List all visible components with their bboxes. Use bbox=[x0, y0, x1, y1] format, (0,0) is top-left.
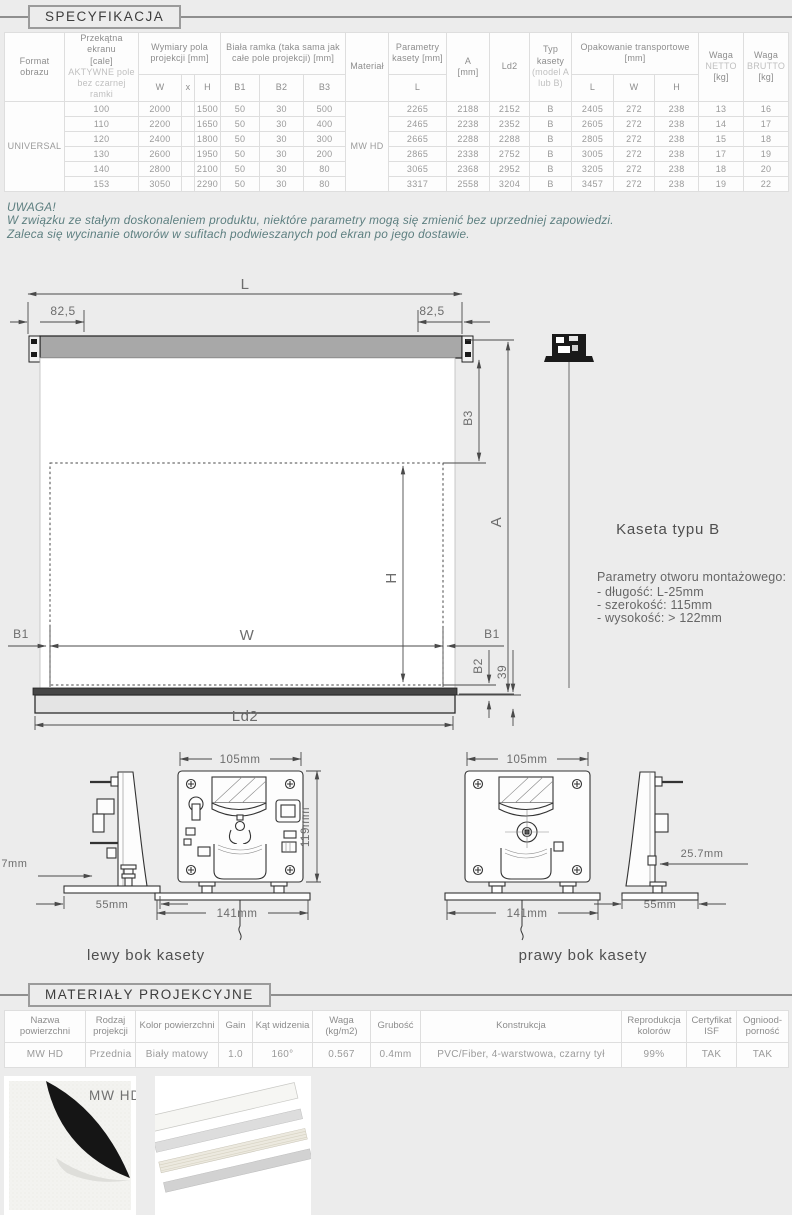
cell: 2288 bbox=[490, 131, 530, 146]
col-gross-line1: Waga bbox=[744, 50, 788, 61]
left-view-caption: lewy bok kasety bbox=[87, 947, 205, 964]
col-diagonal-line3: AKTYWNE pole bbox=[65, 67, 138, 78]
col-type-line1: Typ bbox=[530, 44, 571, 55]
cell: 50 bbox=[221, 101, 260, 116]
cell: 2200 bbox=[139, 116, 182, 131]
cell: B bbox=[530, 116, 572, 131]
right-dim-257-label: 25.7mm bbox=[681, 848, 724, 860]
cell: 22 bbox=[744, 176, 789, 191]
cell: 30 bbox=[260, 131, 304, 146]
material-value: MW HD bbox=[346, 101, 389, 191]
screen-front-drawing: L 82,5 82,5 bbox=[0, 266, 792, 736]
cell: TAK bbox=[737, 1042, 789, 1067]
col-projection-dims: Wymiary pola projekcji [mm] bbox=[139, 33, 221, 75]
cell: 3204 bbox=[490, 176, 530, 191]
cell: 3457 bbox=[572, 176, 614, 191]
cell: PVC/Fiber, 4-warstwowa, czarny tył bbox=[421, 1042, 622, 1067]
cell: 30 bbox=[260, 101, 304, 116]
mat-col-color-reproduction: Reprodukcja kolorów bbox=[622, 1010, 687, 1042]
col-gross-weight: Waga BRUTTO [kg] bbox=[744, 33, 789, 102]
four-layer-stack bbox=[155, 1082, 311, 1192]
cell: 2152 bbox=[490, 101, 530, 116]
col-net-weight: Waga NETTO [kg] bbox=[699, 33, 744, 102]
cell: 238 bbox=[655, 131, 699, 146]
material-layers-photo bbox=[155, 1076, 311, 1215]
cell: 120 bbox=[65, 131, 139, 146]
cell: 100 bbox=[65, 101, 139, 116]
subcol-pack-l: L bbox=[572, 74, 614, 101]
col-type-line4: lub B) bbox=[530, 78, 571, 89]
cell: 153 bbox=[65, 176, 139, 191]
cell: 30 bbox=[260, 176, 304, 191]
cell: 17 bbox=[744, 116, 789, 131]
cell: 272 bbox=[614, 131, 655, 146]
table-row: 110 2200 1650 50 30 400 2465 2238 2352 B… bbox=[5, 116, 789, 131]
cell: 20 bbox=[744, 161, 789, 176]
cell: 0.4mm bbox=[371, 1042, 421, 1067]
dim-825-right-label: 82,5 bbox=[419, 304, 444, 318]
cell bbox=[182, 131, 195, 146]
cassette-side-profile bbox=[544, 334, 594, 688]
cell: 0.567 bbox=[313, 1042, 371, 1067]
cell: 2100 bbox=[195, 161, 221, 176]
cell: 500 bbox=[304, 101, 346, 116]
notice-line2: Zaleca się wycinanie otworów w sufitach … bbox=[7, 228, 792, 242]
cell: 2288 bbox=[447, 131, 490, 146]
dim-825-left-label: 82,5 bbox=[50, 304, 75, 318]
materials-section-title: MATERIAŁY PROJEKCYJNE bbox=[28, 983, 271, 1007]
cell: 200 bbox=[304, 146, 346, 161]
col-net-line3: [kg] bbox=[699, 72, 743, 83]
subcol-cassette-l: L bbox=[389, 74, 447, 101]
col-a: A [mm] bbox=[447, 33, 490, 102]
right-view-caption: prawy bok kasety bbox=[519, 947, 648, 964]
cell: 1650 bbox=[195, 116, 221, 131]
cell: B bbox=[530, 176, 572, 191]
cell: 400 bbox=[304, 116, 346, 131]
cell: 17 bbox=[699, 146, 744, 161]
cell: B bbox=[530, 146, 572, 161]
cell bbox=[182, 146, 195, 161]
cell: 2665 bbox=[389, 131, 447, 146]
table-row: 130 2600 1950 50 30 200 2865 2338 2752 B… bbox=[5, 146, 789, 161]
mounting-item-height: - wysokość: > 122mm bbox=[597, 611, 722, 625]
col-diagonal-line2: [cale] bbox=[65, 56, 138, 67]
col-type-line3: (model A bbox=[530, 67, 571, 78]
cell: 30 bbox=[260, 146, 304, 161]
cell: 2338 bbox=[447, 146, 490, 161]
col-format: Format obrazu bbox=[5, 33, 65, 102]
table-row: UNIVERSAL 100 2000 1500 50 30 500 MW HD … bbox=[5, 101, 789, 116]
cell: 238 bbox=[655, 161, 699, 176]
table-row: MW HD Przednia Biały matowy 1.0 160° 0.5… bbox=[5, 1042, 789, 1067]
cell: 272 bbox=[614, 161, 655, 176]
cassette-side-views-drawing: 25.7mm 55mm 105mm 119mm 141mm lewy bok k… bbox=[0, 736, 792, 976]
left-dim-119-label: 119mm bbox=[300, 807, 312, 847]
mat-col-surface-color: Kolor powierzchni bbox=[136, 1010, 219, 1042]
subcol-b3: B3 bbox=[304, 74, 346, 101]
cell: 1.0 bbox=[219, 1042, 253, 1067]
cell: 30 bbox=[260, 116, 304, 131]
cell: 2752 bbox=[490, 146, 530, 161]
table-row: 140 2800 2100 50 30 80 3065 2368 2952 B … bbox=[5, 161, 789, 176]
mat-col-isf-certificate: Certyfikat ISF bbox=[687, 1010, 737, 1042]
cell: 238 bbox=[655, 176, 699, 191]
cell: 13 bbox=[699, 101, 744, 116]
dim-825-left-group: 82,5 bbox=[10, 304, 84, 332]
cell: 110 bbox=[65, 116, 139, 131]
subcol-w: W bbox=[139, 74, 182, 101]
cell: 50 bbox=[221, 146, 260, 161]
spec-section-title: SPECYFIKACJA bbox=[28, 5, 181, 29]
dim-l-group: L bbox=[28, 276, 462, 334]
cell: 2238 bbox=[447, 116, 490, 131]
cell bbox=[182, 116, 195, 131]
cell: 3005 bbox=[572, 146, 614, 161]
cell: 18 bbox=[744, 131, 789, 146]
spec-sheet-page: SPECYFIKACJA Format obrazu Przekątna ekr… bbox=[0, 4, 792, 1204]
cell: 2558 bbox=[447, 176, 490, 191]
col-gross-line2: BRUTTO bbox=[744, 61, 788, 72]
header-rule-left bbox=[0, 16, 28, 18]
col-ld2: Ld2 bbox=[490, 33, 530, 102]
cell: 2352 bbox=[490, 116, 530, 131]
dim-ld2-label: Ld2 bbox=[232, 708, 259, 725]
col-type: Typ kasety (model A lub B) bbox=[530, 33, 572, 102]
cell: 2600 bbox=[139, 146, 182, 161]
left-profile-view bbox=[64, 772, 160, 893]
cell: 99% bbox=[622, 1042, 687, 1067]
spec-table: Format obrazu Przekątna ekranu [cale] AK… bbox=[4, 32, 789, 192]
mat-col-fire-resistance: Ogniood- porność bbox=[737, 1010, 789, 1042]
cell: MW HD bbox=[5, 1042, 86, 1067]
cell: 2400 bbox=[139, 131, 182, 146]
col-material: Materiał bbox=[346, 33, 389, 102]
col-type-line2: kasety bbox=[530, 56, 571, 67]
cell: 2000 bbox=[139, 101, 182, 116]
col-a-line2: [mm] bbox=[447, 67, 489, 78]
col-diagonal: Przekątna ekranu [cale] AKTYWNE pole bez… bbox=[65, 33, 139, 102]
dim-b1-right-label: B1 bbox=[484, 627, 500, 641]
mat-col-thickness: Grubość bbox=[371, 1010, 421, 1042]
mat-col-construction: Konstrukcja bbox=[421, 1010, 622, 1042]
cell: 300 bbox=[304, 131, 346, 146]
mounting-item-width: - szerokość: 115mm bbox=[597, 598, 712, 612]
dim-h-label: H bbox=[383, 572, 400, 583]
subcol-h: H bbox=[195, 74, 221, 101]
dim-b1-right-group: B1 bbox=[447, 627, 504, 646]
cell: B bbox=[530, 101, 572, 116]
cell bbox=[182, 176, 195, 191]
right-dim-105-label: 105mm bbox=[507, 754, 548, 766]
cell: 1800 bbox=[195, 131, 221, 146]
cell: 3065 bbox=[389, 161, 447, 176]
cell: 2188 bbox=[447, 101, 490, 116]
dim-b3-label: B3 bbox=[461, 410, 475, 426]
subcol-pack-h: H bbox=[655, 74, 699, 101]
mat-col-viewing-angle: Kąt widzenia bbox=[253, 1010, 313, 1042]
cell: 1500 bbox=[195, 101, 221, 116]
cell: 140 bbox=[65, 161, 139, 176]
subcol-pack-w: W bbox=[614, 74, 655, 101]
mwhd-sample-image: MW HD bbox=[4, 1076, 136, 1215]
mounting-params: Parametry otworu montażowego: - długość:… bbox=[597, 570, 786, 625]
col-a-line1: A bbox=[447, 56, 489, 67]
cell: 30 bbox=[260, 161, 304, 176]
mat-col-gain: Gain bbox=[219, 1010, 253, 1042]
cell: 272 bbox=[614, 101, 655, 116]
mat-col-weight: Waga (kg/m2) bbox=[313, 1010, 371, 1042]
cell: 272 bbox=[614, 116, 655, 131]
notice-title: UWAGA! bbox=[7, 201, 792, 215]
cell: B bbox=[530, 161, 572, 176]
cell: 2265 bbox=[389, 101, 447, 116]
col-cassette-params: Parametry kasety [mm] bbox=[389, 33, 447, 75]
cell: 1950 bbox=[195, 146, 221, 161]
cell: 19 bbox=[699, 176, 744, 191]
cell: 2605 bbox=[572, 116, 614, 131]
mat-col-projection-type: Rodzaj projekcji bbox=[86, 1010, 136, 1042]
cell: 272 bbox=[614, 146, 655, 161]
cell: 19 bbox=[744, 146, 789, 161]
col-diagonal-line1: Przekątna ekranu bbox=[65, 33, 138, 56]
cell: B bbox=[530, 131, 572, 146]
col-net-line1: Waga bbox=[699, 50, 743, 61]
dim-l-label: L bbox=[241, 276, 250, 293]
cell: 272 bbox=[614, 176, 655, 191]
cell: 80 bbox=[304, 161, 346, 176]
header-rule-right bbox=[271, 994, 792, 996]
cell: TAK bbox=[687, 1042, 737, 1067]
dim-39-label: 39 bbox=[495, 665, 509, 679]
left-dim-257-label: 25.7mm bbox=[0, 858, 27, 870]
header-rule-right bbox=[181, 16, 792, 18]
left-dim-141-label: 141mm bbox=[217, 908, 258, 920]
materials-section-header: MATERIAŁY PROJEKCYJNE bbox=[0, 982, 792, 1008]
left-dim-55-label: 55mm bbox=[96, 899, 129, 911]
cell: 2952 bbox=[490, 161, 530, 176]
materials-table: Nazwa powierzchni Rodzaj projekcji Kolor… bbox=[4, 1010, 789, 1068]
cell: 238 bbox=[655, 116, 699, 131]
dim-w-label: W bbox=[240, 627, 255, 644]
cell: 50 bbox=[221, 131, 260, 146]
cell: 2465 bbox=[389, 116, 447, 131]
cell: 16 bbox=[744, 101, 789, 116]
cell: 14 bbox=[699, 116, 744, 131]
cell: 3050 bbox=[139, 176, 182, 191]
left-dim-105-label: 105mm bbox=[220, 754, 261, 766]
dim-b1-left-label: B1 bbox=[13, 627, 29, 641]
notice-block: UWAGA! W związku ze stałym doskonaleniem… bbox=[7, 201, 792, 242]
col-diagonal-line4: bez czarnej ramki bbox=[65, 78, 138, 101]
cell bbox=[182, 101, 195, 116]
cell: 160° bbox=[253, 1042, 313, 1067]
subcol-b1: B1 bbox=[221, 74, 260, 101]
col-packaging: Opakowanie transportowe [mm] bbox=[572, 33, 699, 75]
cell: 2865 bbox=[389, 146, 447, 161]
spec-section-header: SPECYFIKACJA bbox=[0, 4, 792, 30]
cell: 2368 bbox=[447, 161, 490, 176]
material-samples: MW HD bbox=[4, 1076, 792, 1215]
cell: 238 bbox=[655, 101, 699, 116]
notice-line1: W związku ze stałym doskonaleniem produk… bbox=[7, 214, 792, 228]
subcol-x: x bbox=[182, 74, 195, 101]
header-rule-left bbox=[0, 994, 28, 996]
cell: 80 bbox=[304, 176, 346, 191]
cell: 130 bbox=[65, 146, 139, 161]
right-dim-55-label: 55mm bbox=[644, 899, 677, 911]
subcol-b2: B2 bbox=[260, 74, 304, 101]
cell: 2800 bbox=[139, 161, 182, 176]
cell: 238 bbox=[655, 146, 699, 161]
layer-stack-image bbox=[155, 1076, 311, 1215]
format-value: UNIVERSAL bbox=[5, 101, 65, 191]
cell: 2805 bbox=[572, 131, 614, 146]
cell: 50 bbox=[221, 161, 260, 176]
table-row: 153 3050 2290 50 30 80 3317 2558 3204 B … bbox=[5, 176, 789, 191]
cell: 50 bbox=[221, 116, 260, 131]
dim-a-label: A bbox=[488, 517, 505, 528]
right-dim-141-label: 141mm bbox=[507, 908, 548, 920]
mat-col-surface-name: Nazwa powierzchni bbox=[5, 1010, 86, 1042]
cell: 18 bbox=[699, 161, 744, 176]
cell: 3317 bbox=[389, 176, 447, 191]
mounting-title: Parametry otworu montażowego: bbox=[597, 570, 786, 584]
dim-825-right-group: 82,5 bbox=[418, 304, 490, 332]
table-row: 120 2400 1800 50 30 300 2665 2288 2288 B… bbox=[5, 131, 789, 146]
cassette-type-title: Kaseta typu B bbox=[616, 521, 720, 538]
col-net-line2: NETTO bbox=[699, 61, 743, 72]
cell: 2405 bbox=[572, 101, 614, 116]
mounting-item-length: - długość: L-25mm bbox=[597, 585, 704, 599]
dim-b2-label: B2 bbox=[471, 658, 485, 674]
cell: 50 bbox=[221, 176, 260, 191]
right-profile-view bbox=[622, 772, 698, 900]
cell: Przednia bbox=[86, 1042, 136, 1067]
cell: 3205 bbox=[572, 161, 614, 176]
cell: Biały matowy bbox=[136, 1042, 219, 1067]
sample-material-label: MW HD bbox=[89, 1088, 136, 1103]
col-white-frame: Biała ramka (taka sama jak całe pole pro… bbox=[221, 33, 346, 75]
cell: 2290 bbox=[195, 176, 221, 191]
cell: 15 bbox=[699, 131, 744, 146]
col-gross-line3: [kg] bbox=[744, 72, 788, 83]
cell bbox=[182, 161, 195, 176]
material-sample-photo: MW HD bbox=[4, 1076, 136, 1215]
